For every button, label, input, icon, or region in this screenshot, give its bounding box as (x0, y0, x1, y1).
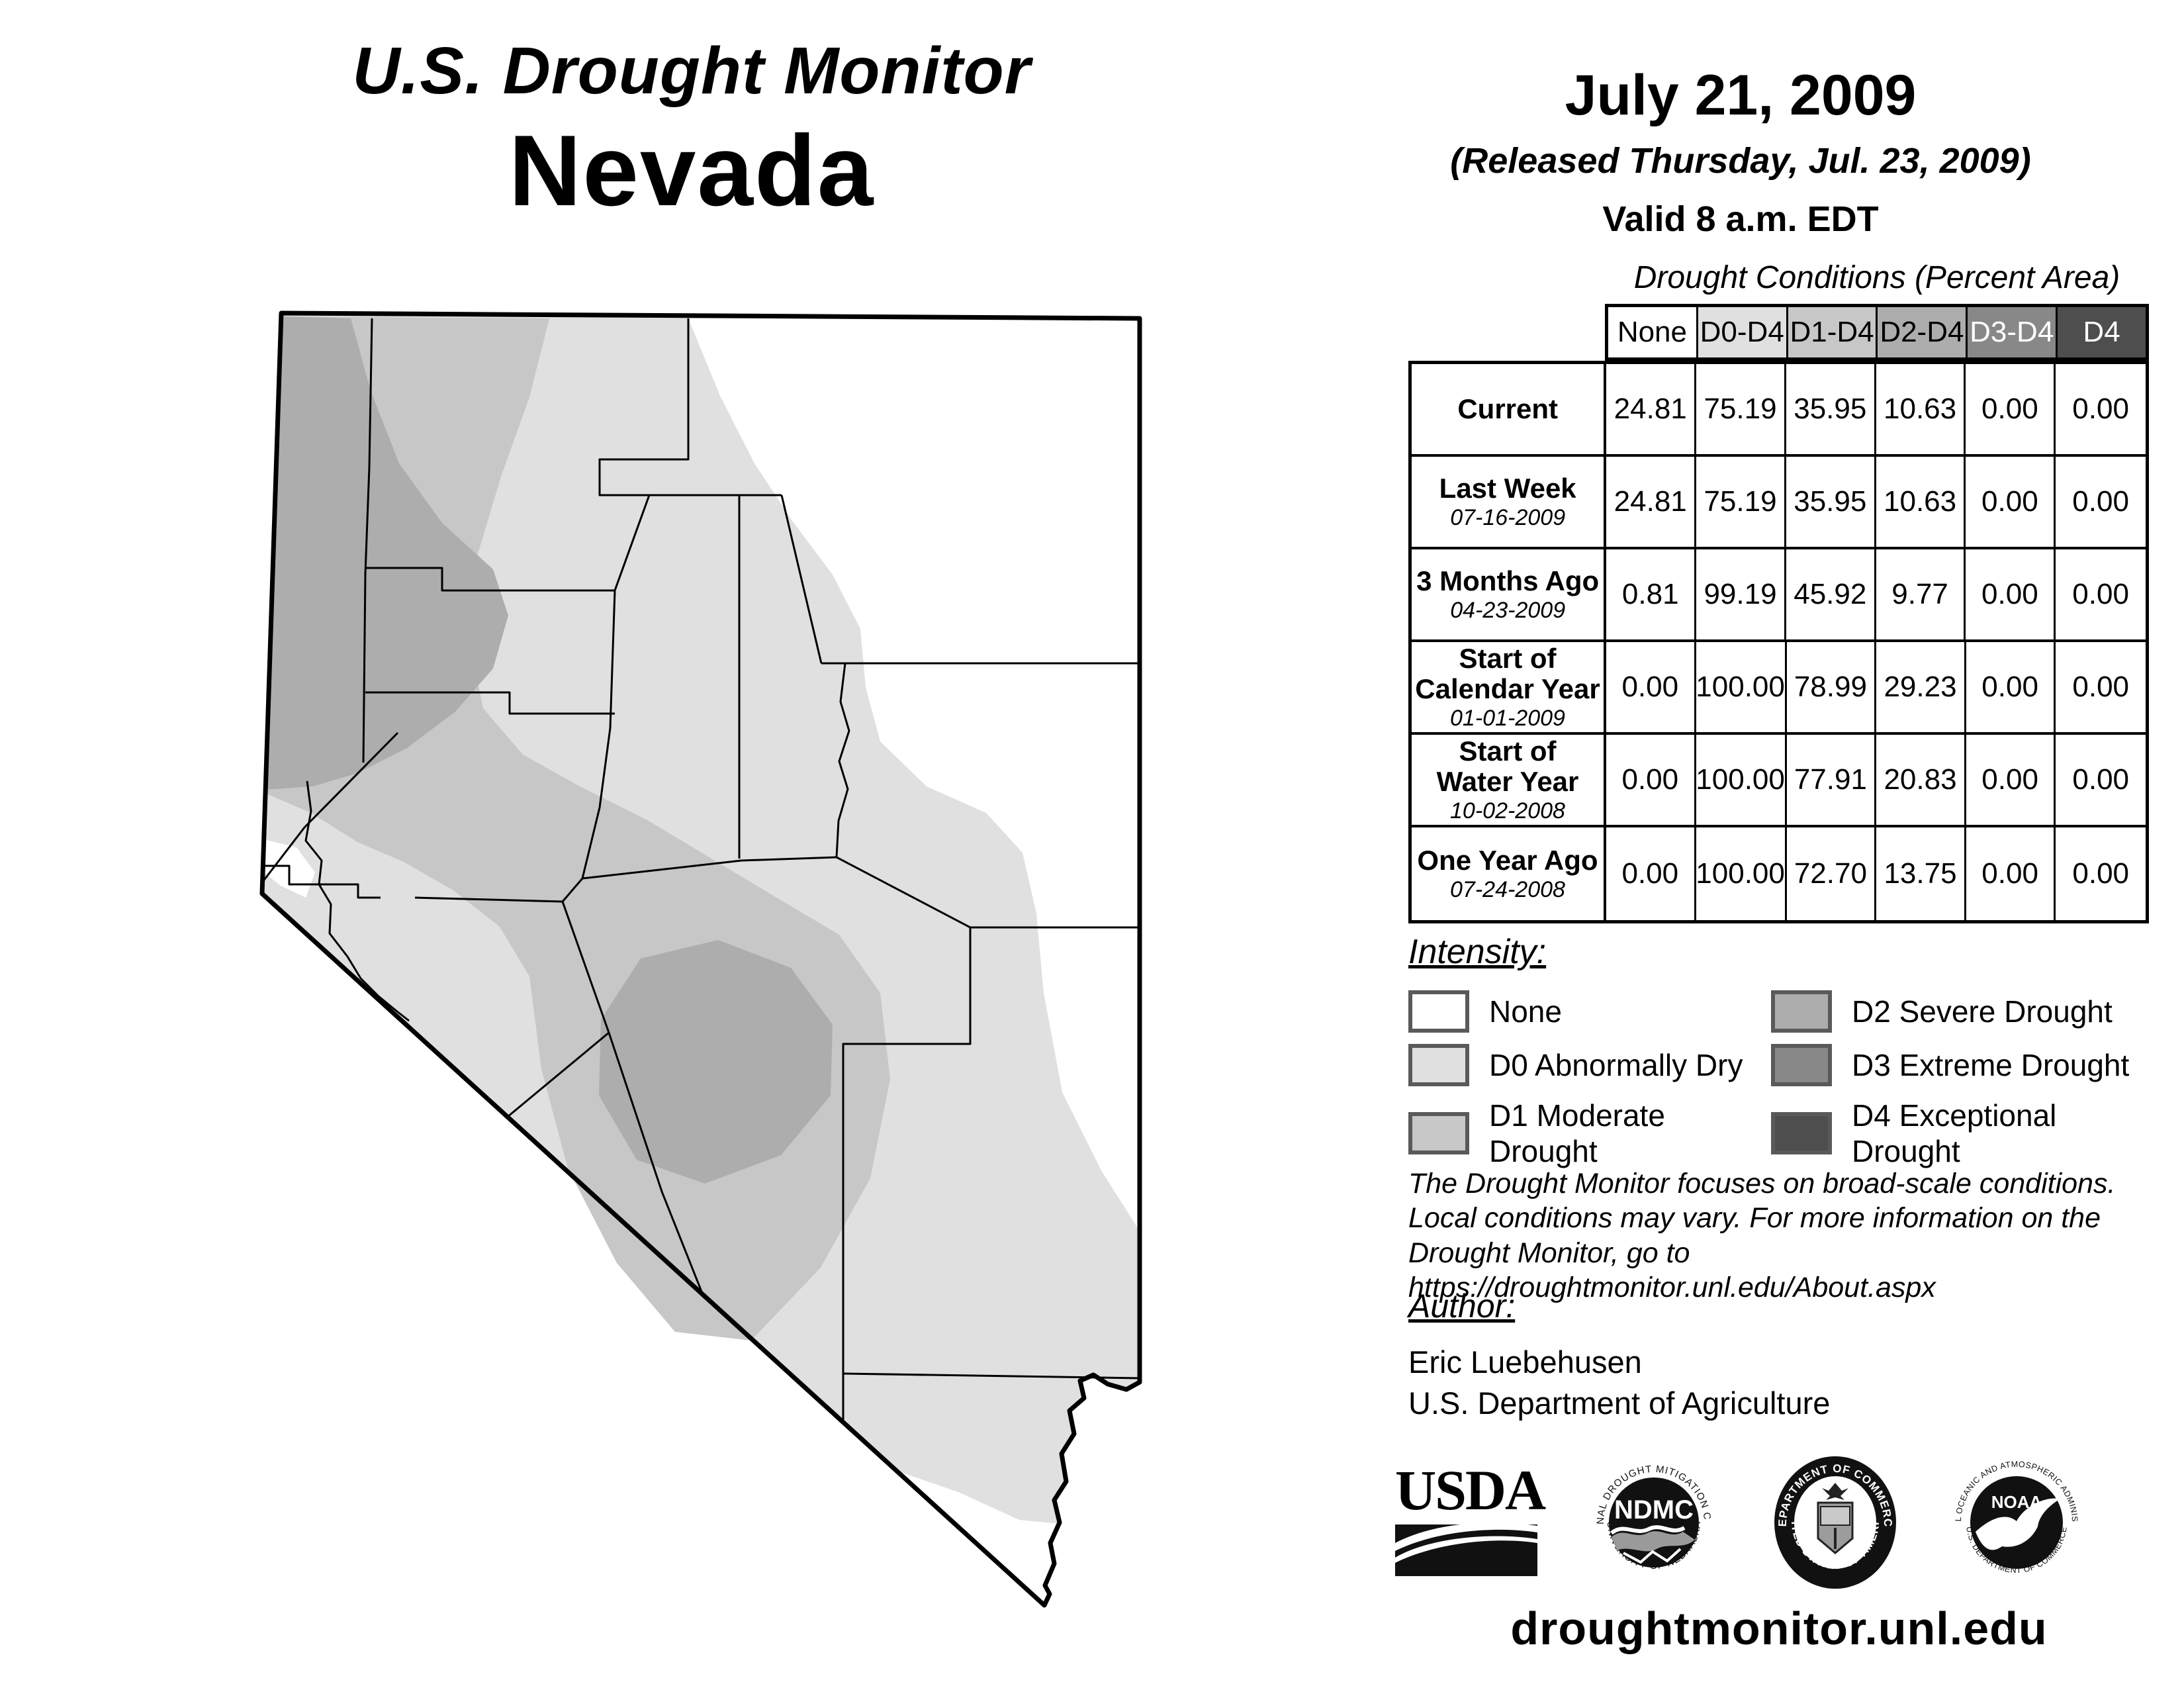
cell-value: 0.00 (1966, 549, 2056, 639)
cell-value: 75.19 (1696, 364, 1786, 454)
legend-label: None (1489, 994, 1562, 1029)
disclaimer-line: Local conditions may vary. For more info… (1408, 1201, 2184, 1235)
row-label: Last Week (1439, 473, 1576, 503)
usda-logo: USDA (1395, 1465, 1537, 1579)
cell-value: 35.95 (1786, 364, 1876, 454)
legend-item-d4: D4 Exceptional Drought (1771, 1098, 2134, 1169)
legend-title: Intensity: (1408, 932, 1546, 972)
cell-value: 0.00 (1966, 735, 2056, 825)
table-row: Current 24.81 75.19 35.95 10.63 0.00 0.0… (1412, 364, 2146, 457)
cell-value: 0.00 (1606, 642, 1696, 732)
ndmc-wordmark: NDMC (1614, 1495, 1694, 1524)
row-date: 07-16-2009 (1450, 506, 1565, 530)
cell-value: 100.00 (1696, 827, 1787, 920)
noaa-logo: NATIONAL OCEANIC AND ATMOSPHERIC ADMINIS… (1946, 1452, 2087, 1593)
report-title: U.S. Drought Monitor (251, 33, 1132, 109)
col-header-d1d4: D1-D4 (1788, 307, 1878, 357)
cell-value: 0.00 (1606, 735, 1696, 825)
legend-swatch-d4 (1771, 1112, 1832, 1154)
legend-label: D1 Moderate Drought (1489, 1098, 1771, 1169)
row-date: 04-23-2009 (1450, 598, 1565, 623)
row-date: 10-02-2008 (1450, 799, 1565, 823)
release-date: (Released Thursday, Jul. 23, 2009) (1330, 140, 2151, 181)
row-label: One Year Ago (1417, 845, 1598, 875)
ndmc-logo: NATIONAL DROUGHT MITIGATION CENTER UNIVE… (1584, 1452, 1724, 1593)
table-row: 3 Months Ago 04-23-2009 0.81 99.19 45.92… (1412, 549, 2146, 642)
usda-swoosh-icon (1395, 1517, 1537, 1576)
row-label: Start of Water Year (1437, 736, 1579, 796)
report-title-block: U.S. Drought Monitor Nevada (251, 33, 1132, 229)
col-header-d4: D4 (2058, 307, 2146, 357)
cell-value: 13.75 (1876, 827, 1966, 920)
drought-monitor-report: U.S. Drought Monitor Nevada (0, 0, 2184, 1688)
author-heading: Author: (1408, 1287, 1515, 1325)
nevada-drought-map (257, 303, 1152, 1615)
col-header-d2d4: D2-D4 (1878, 307, 1968, 357)
intensity-legend: None D2 Severe Drought D0 Abnormally Dry… (1408, 990, 2156, 1180)
cell-value: 0.00 (1606, 827, 1696, 920)
cell-value: 9.77 (1876, 549, 1966, 639)
row-date: 01-01-2009 (1450, 706, 1565, 731)
cell-value: 0.00 (1966, 827, 2056, 920)
legend-item-none: None (1408, 990, 1771, 1033)
drought-conditions-table: Current 24.81 75.19 35.95 10.63 0.00 0.0… (1408, 361, 2149, 923)
col-header-d3d4: D3-D4 (1968, 307, 2058, 357)
cell-value: 24.81 (1606, 457, 1696, 547)
valid-time: Valid 8 a.m. EDT (1330, 199, 2151, 240)
table-row: One Year Ago 07-24-2008 0.00 100.00 72.7… (1412, 827, 2146, 920)
cell-value: 10.63 (1876, 457, 1966, 547)
cell-value: 78.99 (1787, 642, 1877, 732)
row-label: Current (1457, 394, 1558, 424)
legend-item-d0: D0 Abnormally Dry (1408, 1044, 1771, 1086)
cell-value: 0.00 (2056, 735, 2146, 825)
col-header-d0d4: D0-D4 (1698, 307, 1788, 357)
table-header-row: None D0-D4 D1-D4 D2-D4 D3-D4 D4 (1605, 304, 2149, 361)
author-organization: U.S. Department of Agriculture (1408, 1385, 1830, 1421)
map-date: July 21, 2009 (1330, 63, 2151, 128)
col-header-none: None (1608, 307, 1698, 357)
legend-label: D3 Extreme Drought (1852, 1047, 2129, 1083)
cell-value: 0.00 (1966, 364, 2056, 454)
department-of-commerce-logo: DEPARTMENT OF COMMERCE UNITED STATES OF … (1765, 1452, 1905, 1593)
legend-swatch-d0 (1408, 1044, 1469, 1086)
cell-value: 45.92 (1786, 549, 1876, 639)
legend-swatch-d1 (1408, 1112, 1469, 1154)
cell-value: 0.00 (2056, 827, 2146, 920)
row-label: 3 Months Ago (1416, 566, 1599, 596)
row-date: 07-24-2008 (1450, 878, 1565, 902)
legend-swatch-none (1408, 990, 1469, 1033)
cell-value: 0.00 (2056, 457, 2146, 547)
noaa-wordmark: NOAA (1991, 1492, 2042, 1512)
table-title: Drought Conditions (Percent Area) (1605, 259, 2149, 296)
legend-swatch-d2 (1771, 990, 1832, 1033)
legend-label: D4 Exceptional Drought (1852, 1098, 2134, 1169)
cell-value: 0.00 (2056, 642, 2146, 732)
legend-label: D2 Severe Drought (1852, 994, 2113, 1029)
cell-value: 75.19 (1696, 457, 1786, 547)
legend-label: D0 Abnormally Dry (1489, 1047, 1743, 1083)
usda-wordmark: USDA (1395, 1465, 1537, 1516)
cell-value: 0.00 (2056, 364, 2146, 454)
cell-value: 0.81 (1606, 549, 1696, 639)
author-name: Eric Luebehusen (1408, 1344, 1642, 1380)
row-label: Start of Calendar Year (1415, 643, 1600, 704)
agency-logos: USDA NATIONAL DROUGHT MITIGATION CENTER … (1395, 1451, 2136, 1593)
disclaimer-line: The Drought Monitor focuses on broad-sca… (1408, 1166, 2184, 1201)
state-name-title: Nevada (251, 113, 1132, 229)
disclaimer-text: The Drought Monitor focuses on broad-sca… (1408, 1166, 2184, 1305)
cell-value: 99.19 (1696, 549, 1786, 639)
cell-value: 100.00 (1696, 735, 1787, 825)
cell-value: 10.63 (1876, 364, 1966, 454)
table-row: Start of Calendar Year 01-01-2009 0.00 1… (1412, 642, 2146, 735)
table-row: Start of Water Year 10-02-2008 0.00 100.… (1412, 735, 2146, 827)
cell-value: 100.00 (1696, 642, 1787, 732)
cell-value: 72.70 (1787, 827, 1877, 920)
legend-swatch-d3 (1771, 1044, 1832, 1086)
legend-item-d2: D2 Severe Drought (1771, 990, 2134, 1033)
legend-item-d1: D1 Moderate Drought (1408, 1098, 1771, 1169)
cell-value: 0.00 (1966, 457, 2056, 547)
table-row: Last Week 07-16-2009 24.81 75.19 35.95 1… (1412, 457, 2146, 549)
website-url: droughtmonitor.unl.edu (1408, 1602, 2150, 1655)
legend-item-d3: D3 Extreme Drought (1771, 1044, 2134, 1086)
date-block: July 21, 2009 (Released Thursday, Jul. 2… (1330, 63, 2151, 240)
disclaimer-line: Drought Monitor, go to https://droughtmo… (1408, 1236, 2184, 1305)
cell-value: 77.91 (1787, 735, 1877, 825)
cell-value: 20.83 (1876, 735, 1966, 825)
cell-value: 29.23 (1876, 642, 1966, 732)
cell-value: 24.81 (1606, 364, 1696, 454)
cell-value: 0.00 (1966, 642, 2056, 732)
cell-value: 0.00 (2056, 549, 2146, 639)
cell-value: 35.95 (1786, 457, 1876, 547)
